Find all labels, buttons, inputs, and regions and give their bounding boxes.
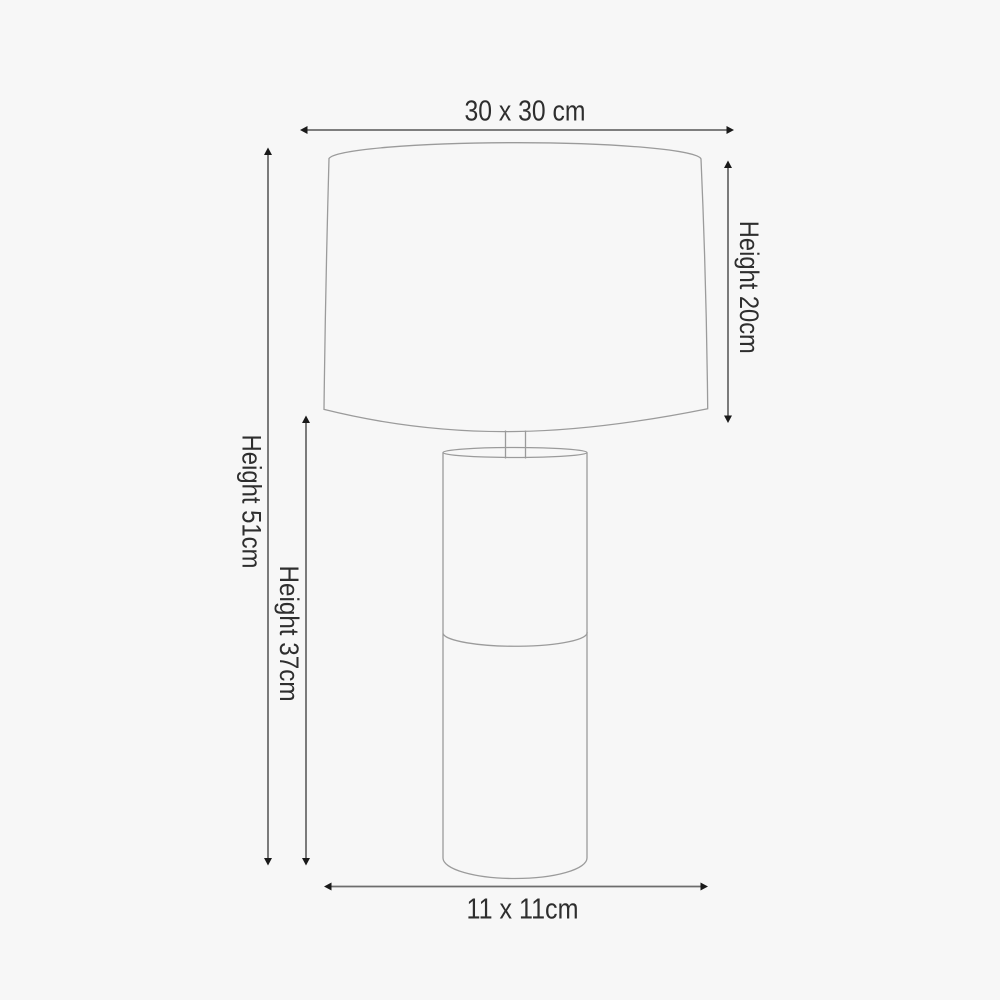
svg-text:11 x 11cm: 11 x 11cm (467, 894, 579, 926)
svg-text:30 x 30 cm: 30 x 30 cm (465, 96, 586, 128)
svg-text:Height 20cm: Height 20cm (734, 221, 764, 354)
svg-text:Height 51cm: Height 51cm (237, 435, 267, 569)
svg-text:Height 37cm: Height 37cm (274, 566, 304, 702)
